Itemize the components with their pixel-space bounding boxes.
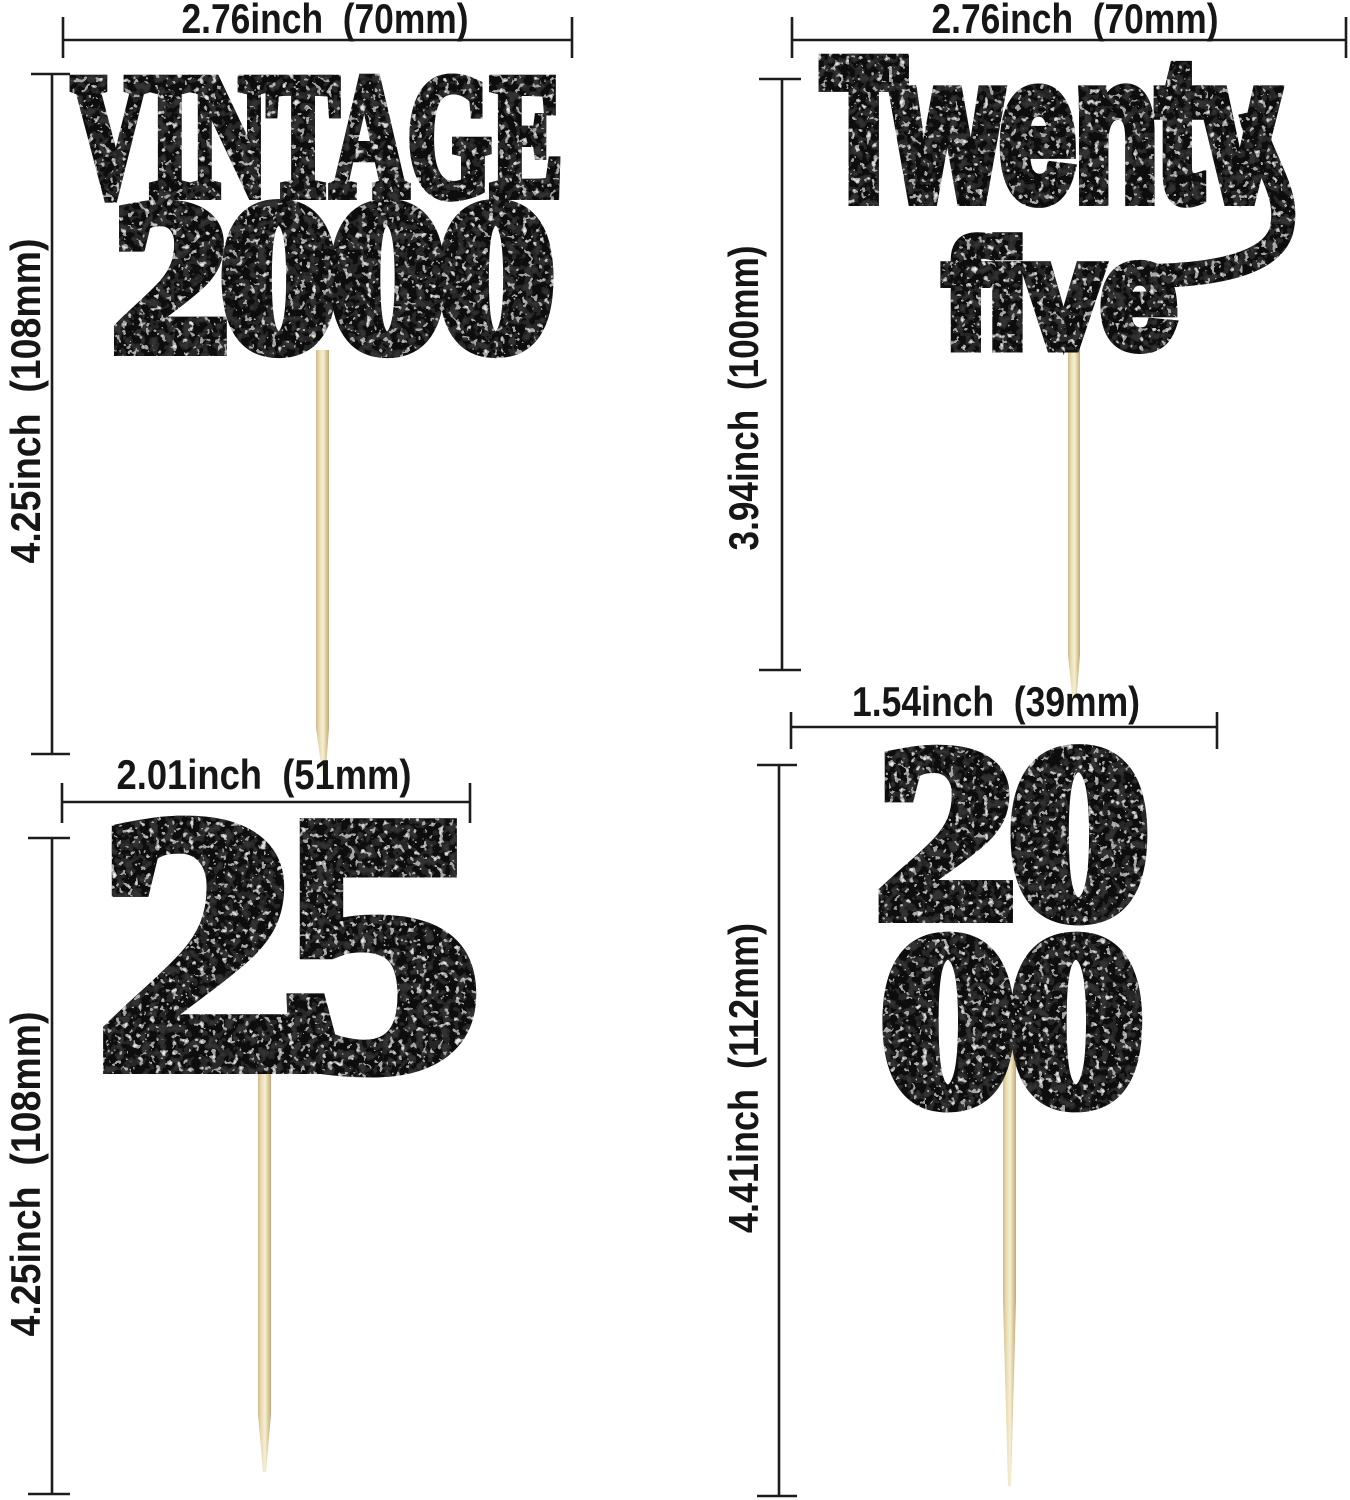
svg-text:2000: 2000 — [113, 159, 547, 394]
svg-text:4.25inch (108mm): 4.25inch (108mm) — [2, 1012, 49, 1337]
svg-text:Twentv: Twentv — [823, 19, 1278, 240]
svg-text:five: five — [944, 213, 1176, 378]
svg-text:3.94inch (100mm): 3.94inch (100mm) — [720, 246, 767, 551]
svg-text:2.76inch (70mm): 2.76inch (70mm) — [182, 0, 469, 42]
svg-text:4.25inch (108mm): 4.25inch (108mm) — [2, 239, 49, 564]
svg-text:4.41inch (112mm): 4.41inch (112mm) — [720, 923, 767, 1233]
svg-text:00: 00 — [881, 885, 1137, 1155]
svg-text:25: 25 — [98, 743, 468, 1142]
